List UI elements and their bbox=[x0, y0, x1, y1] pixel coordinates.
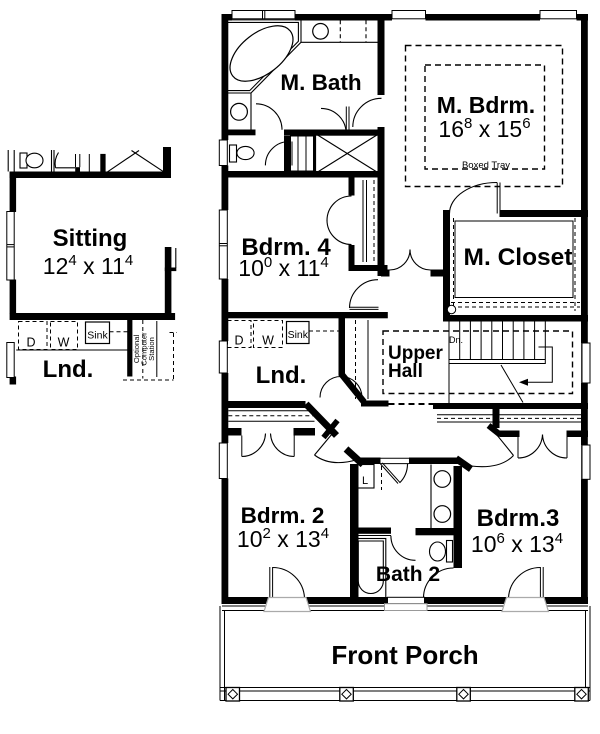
svg-text:M. Bath: M. Bath bbox=[280, 70, 361, 95]
svg-text:Dn.: Dn. bbox=[449, 335, 463, 345]
svg-text:M. Bdrm.: M. Bdrm. bbox=[437, 92, 535, 118]
svg-text:Lnd.: Lnd. bbox=[43, 356, 94, 383]
svg-text:Hall: Hall bbox=[388, 361, 423, 382]
svg-text:Station: Station bbox=[147, 337, 156, 361]
svg-text:L: L bbox=[362, 475, 368, 487]
svg-text:D: D bbox=[234, 334, 243, 348]
svg-text:Sink: Sink bbox=[87, 330, 108, 342]
svg-text:D: D bbox=[26, 336, 35, 350]
svg-text:Sink: Sink bbox=[288, 329, 309, 341]
svg-text:Bdrm. 2: Bdrm. 2 bbox=[241, 503, 325, 528]
svg-text:168 x 156: 168 x 156 bbox=[438, 115, 530, 142]
svg-text:Boxed Tray: Boxed Tray bbox=[462, 160, 510, 171]
svg-text:106 x 134: 106 x 134 bbox=[471, 530, 563, 557]
svg-text:124 x 114: 124 x 114 bbox=[43, 252, 133, 279]
svg-text:M. Closet: M. Closet bbox=[464, 244, 573, 271]
svg-text:Bath 2: Bath 2 bbox=[376, 563, 440, 586]
svg-text:Lnd.: Lnd. bbox=[256, 362, 307, 389]
svg-text:W: W bbox=[262, 334, 274, 348]
svg-text:W: W bbox=[58, 336, 70, 350]
svg-text:Sitting: Sitting bbox=[53, 225, 128, 252]
svg-text:Front Porch: Front Porch bbox=[331, 640, 478, 670]
svg-text:100 x 114: 100 x 114 bbox=[238, 254, 328, 281]
svg-text:102 x 134: 102 x 134 bbox=[237, 525, 329, 552]
svg-text:Bdrm.3: Bdrm.3 bbox=[477, 505, 560, 532]
